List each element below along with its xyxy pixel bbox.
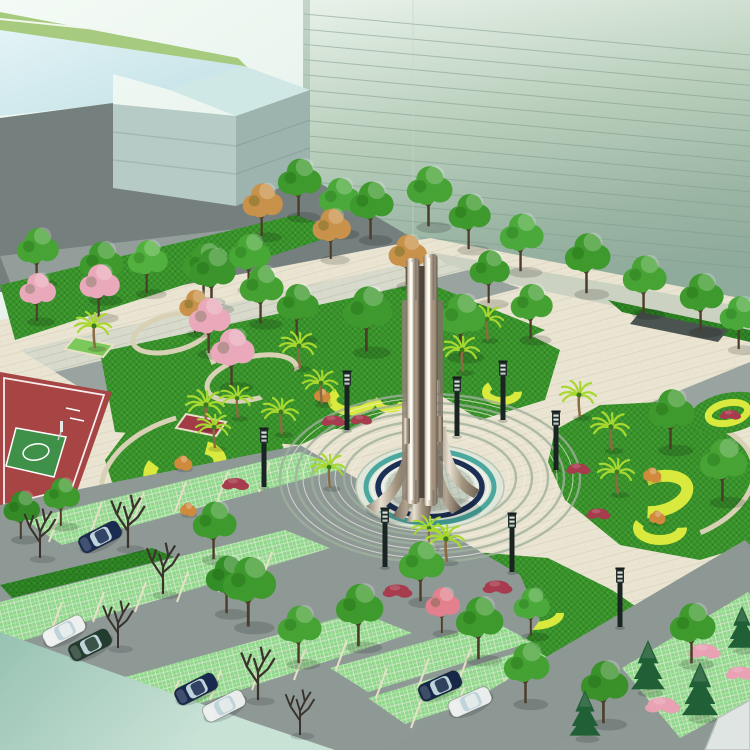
rendering-canvas xyxy=(0,0,750,750)
plaza-rendering xyxy=(0,0,750,750)
sculpture-columns xyxy=(402,254,443,506)
